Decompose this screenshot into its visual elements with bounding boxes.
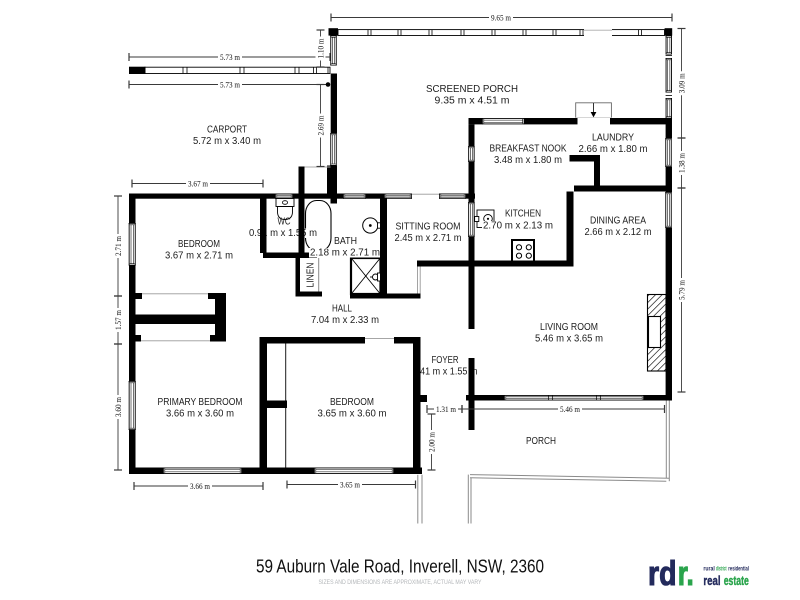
svg-text:KITCHEN: KITCHEN	[505, 209, 541, 220]
svg-text:residential: residential	[728, 565, 749, 572]
svg-text:2.66 m x 1.80 m: 2.66 m x 1.80 m	[579, 144, 648, 155]
svg-text:r.: r.	[678, 555, 694, 593]
svg-text:rural: rural	[703, 565, 715, 572]
svg-text:5.72 m x 3.40 m: 5.72 m x 3.40 m	[193, 136, 261, 147]
svg-text:5.73 m: 5.73 m	[220, 80, 240, 90]
svg-text:3.65 m x 3.60 m: 3.65 m x 3.60 m	[318, 409, 387, 420]
svg-text:SCREENED PORCH: SCREENED PORCH	[426, 84, 518, 95]
svg-text:CARPORT: CARPORT	[207, 125, 247, 136]
svg-text:3.67 m x 2.71 m: 3.67 m x 2.71 m	[165, 251, 233, 262]
svg-text:3.66 m: 3.66 m	[190, 481, 210, 491]
svg-text:BREAKFAST NOOK: BREAKFAST NOOK	[490, 144, 567, 155]
svg-text:3.65 m: 3.65 m	[340, 480, 360, 490]
svg-text:FOYER: FOYER	[432, 355, 459, 366]
svg-text:9.65 m: 9.65 m	[491, 13, 511, 23]
svg-text:2.18 m x 2.71 m: 2.18 m x 2.71 m	[310, 248, 380, 259]
svg-text:3.09 m: 3.09 m	[677, 73, 687, 93]
svg-text:1.31 m: 1.31 m	[436, 404, 456, 414]
svg-text:5.79 m: 5.79 m	[677, 280, 687, 300]
svg-text:3.60 m: 3.60 m	[113, 397, 123, 417]
svg-text:LAUNDRY: LAUNDRY	[592, 133, 634, 144]
svg-text:7.04 m x 2.33 m: 7.04 m x 2.33 m	[311, 315, 379, 326]
svg-text:9.35 m x 4.51 m: 9.35 m x 4.51 m	[435, 96, 510, 107]
svg-text:PORCH: PORCH	[526, 436, 556, 447]
svg-text:LIVING ROOM: LIVING ROOM	[540, 322, 598, 333]
svg-text:2.66 m x 2.12 m: 2.66 m x 2.12 m	[585, 227, 652, 238]
svg-text:real: real	[703, 573, 720, 588]
svg-text:2.45 m x 2.71 m: 2.45 m x 2.71 m	[395, 233, 462, 244]
svg-text:1.10 m: 1.10 m	[316, 38, 326, 58]
svg-text:BEDROOM: BEDROOM	[178, 239, 220, 250]
svg-text:BATH: BATH	[334, 236, 357, 247]
svg-text:3.66 m x 3.60 m: 3.66 m x 3.60 m	[166, 409, 234, 420]
svg-text:district: district	[716, 565, 727, 572]
svg-text:1.38 m: 1.38 m	[677, 153, 687, 173]
svg-text:2.70 m x 2.13 m: 2.70 m x 2.13 m	[483, 221, 553, 232]
svg-text:HALL: HALL	[332, 304, 352, 315]
svg-text:LINEN: LINEN	[306, 263, 317, 288]
svg-text:estate: estate	[724, 573, 749, 588]
svg-text:59 Auburn Vale Road, Inverell,: 59 Auburn Vale Road, Inverell, NSW, 2360	[256, 556, 544, 577]
svg-text:0.91 m x 1.55 m: 0.91 m x 1.55 m	[249, 228, 317, 239]
svg-text:DINING AREA: DINING AREA	[590, 216, 646, 227]
svg-text:1.57 m: 1.57 m	[113, 310, 123, 330]
svg-text:PRIMARY BEDROOM: PRIMARY BEDROOM	[158, 397, 243, 408]
svg-text:2.71 m: 2.71 m	[113, 236, 123, 256]
svg-text:SIZES AND DIMENSIONS ARE APPRO: SIZES AND DIMENSIONS ARE APPROXIMATE, AC…	[319, 579, 483, 586]
svg-text:1.41 m x 1.55 m: 1.41 m x 1.55 m	[413, 367, 478, 378]
svg-text:WC: WC	[278, 217, 291, 228]
svg-text:BEDROOM: BEDROOM	[330, 397, 374, 408]
svg-text:3.48 m x 1.80 m: 3.48 m x 1.80 m	[494, 155, 562, 166]
svg-text:SITTING ROOM: SITTING ROOM	[396, 222, 461, 233]
svg-text:5.73 m: 5.73 m	[220, 52, 240, 62]
svg-text:2.69 m: 2.69 m	[316, 115, 326, 135]
svg-text:5.46 m x 3.65 m: 5.46 m x 3.65 m	[535, 334, 603, 345]
svg-text:2.00 m: 2.00 m	[427, 432, 437, 452]
svg-text:5.46 m: 5.46 m	[560, 404, 580, 414]
svg-text:3.67 m: 3.67 m	[188, 179, 208, 189]
svg-text:rd: rd	[648, 555, 677, 593]
